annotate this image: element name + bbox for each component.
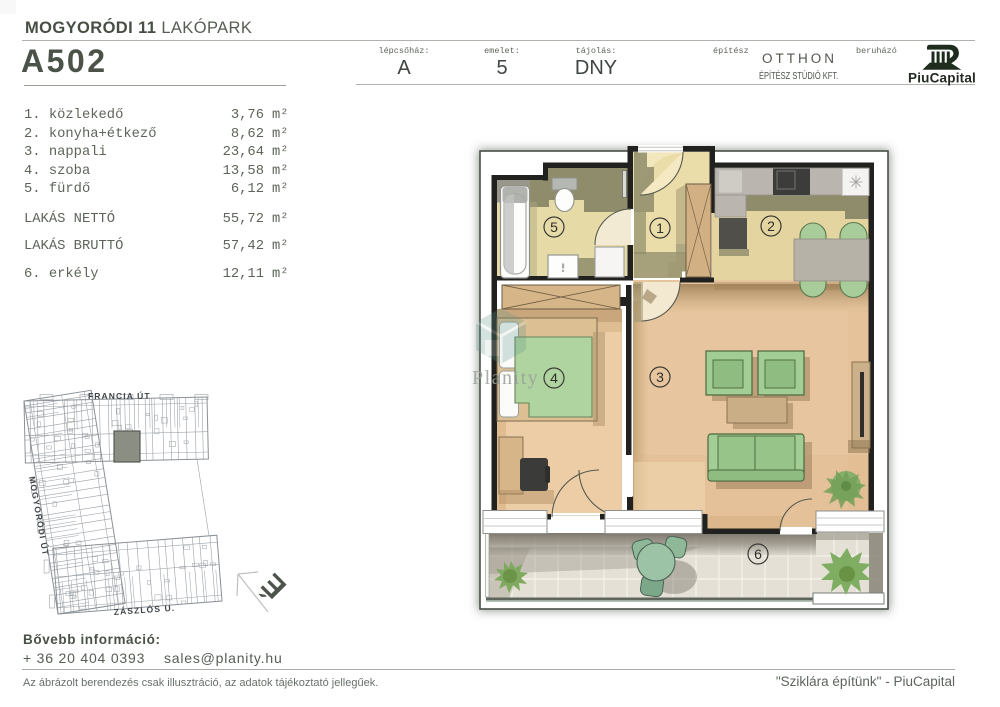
svg-text:PiuCapital: PiuCapital <box>908 71 976 86</box>
svg-text:5: 5 <box>550 219 558 235</box>
svg-text:3: 3 <box>656 369 664 385</box>
svg-text:6: 6 <box>754 546 762 562</box>
svg-text:2: 2 <box>767 218 775 234</box>
svg-text:1: 1 <box>656 220 664 236</box>
svg-text:FRANCIA ÚT: FRANCIA ÚT <box>88 390 151 401</box>
svg-text:É: É <box>255 567 293 605</box>
svg-text:Planity: Planity <box>472 367 539 389</box>
svg-text:4: 4 <box>550 370 558 386</box>
